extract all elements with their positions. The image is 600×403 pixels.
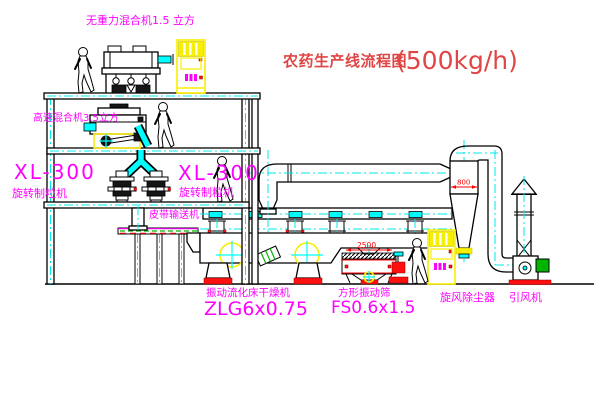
granulator-discharge-duct xyxy=(129,206,147,230)
granulator-left-machine xyxy=(108,171,137,202)
granulator-center-model-label: XL-300 xyxy=(178,161,260,185)
cyclone-label: 旋风除尘器 xyxy=(440,290,495,304)
vibrating-sieve xyxy=(342,245,396,284)
sieve-dimension: 2500 xyxy=(357,241,376,250)
page-title-capacity: (500kg/h) xyxy=(396,46,518,75)
granulator-left-name-label: 旋转制粒机 xyxy=(12,186,67,200)
dryer-feed-hopper xyxy=(187,233,200,252)
dryer-exhaust-pipe xyxy=(250,150,451,232)
fan-base xyxy=(509,280,551,285)
sieve-deck-hatch xyxy=(342,253,396,259)
dryer-domes xyxy=(208,219,424,234)
control-cabinet-roof xyxy=(177,40,205,93)
granulator-left-model-label: XL-300 xyxy=(14,160,96,184)
induced-draft-fan xyxy=(509,256,551,285)
person-icon xyxy=(75,48,94,94)
high-speed-mixer xyxy=(84,104,148,148)
belt-conveyor-label: 皮带输送机 xyxy=(149,208,199,221)
cyclone-discharge xyxy=(456,248,472,254)
dryer-foot xyxy=(294,263,322,284)
column-right-outer xyxy=(252,96,258,284)
flow-diagram-canvas: 农药生产线流程图 (500kg/h) 无重力混合机1.5 立方 高速混合机3.5… xyxy=(0,0,600,403)
page-title: 农药生产线流程图 xyxy=(282,52,407,70)
sieve-model-label: FS0.6x1.5 xyxy=(331,298,415,318)
dryer-foot xyxy=(204,263,232,284)
person-icon xyxy=(155,103,174,149)
cyclone-barrel xyxy=(450,161,478,194)
dryer-model-label: ZLG6x0.75 xyxy=(204,298,308,320)
gravity-free-mixer xyxy=(102,46,173,93)
cyclone-dimension: 800 xyxy=(457,179,470,187)
fan-motor xyxy=(536,259,549,272)
belt-conveyor xyxy=(118,228,198,284)
high-speed-mixer-label: 高速混合机3.5立方 xyxy=(33,111,119,124)
process-flow-diagram: 农药生产线流程图 (500kg/h) 无重力混合机1.5 立方 高速混合机3.5… xyxy=(0,0,600,403)
granulator-center-name-label: 旋转制粒机 xyxy=(179,185,234,199)
gravity-mixer-label: 无重力混合机1.5 立方 xyxy=(86,13,195,27)
granulator-right-machine xyxy=(142,171,171,202)
fan-label: 引风机 xyxy=(509,290,542,304)
control-cabinet-ground xyxy=(428,230,455,284)
